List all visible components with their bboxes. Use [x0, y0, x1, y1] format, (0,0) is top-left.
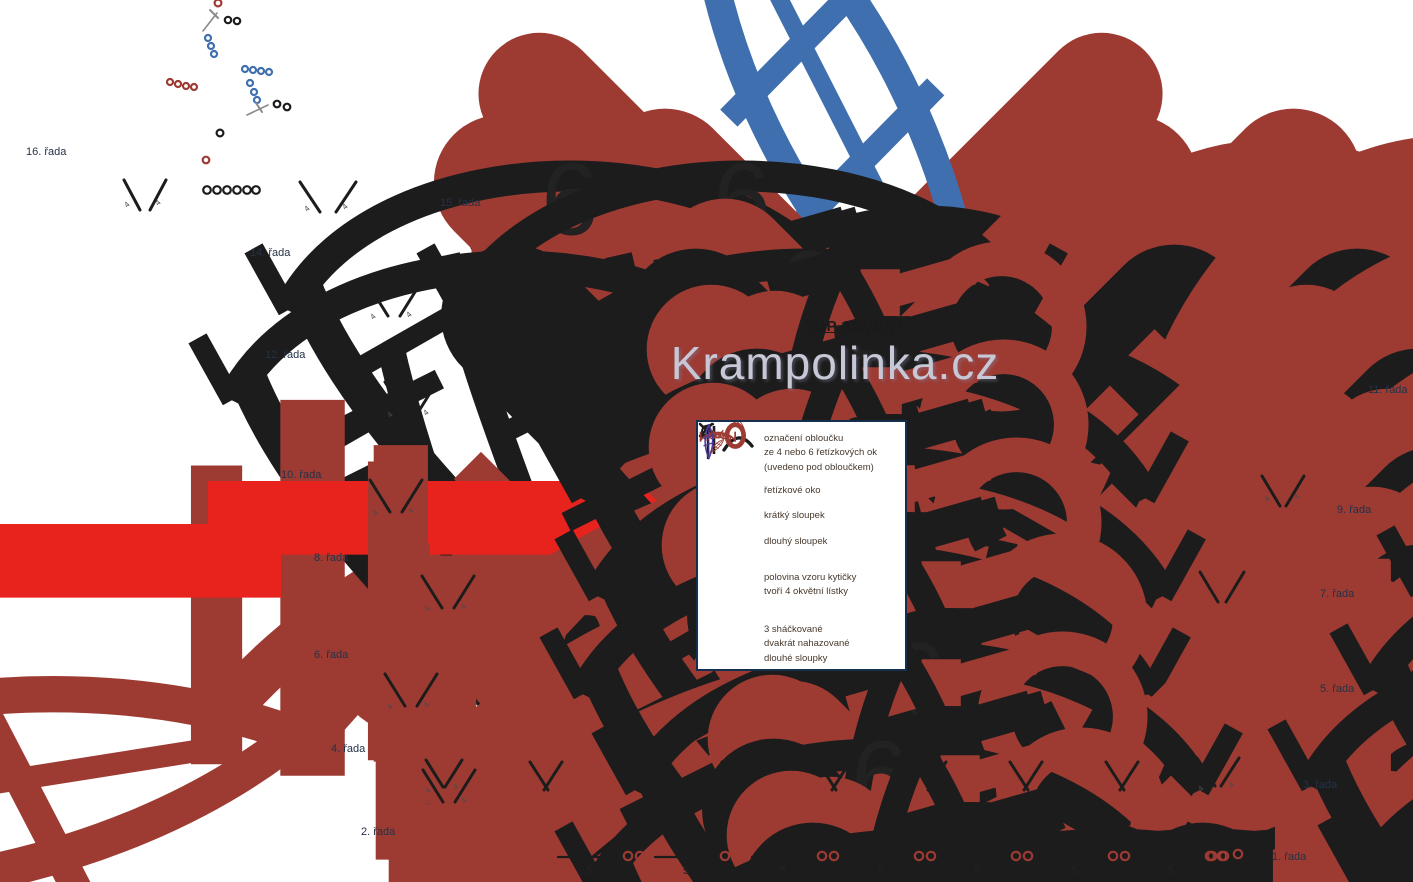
row-label-1: 1. řada	[1272, 851, 1306, 863]
chain-circle	[191, 84, 197, 90]
legend-row-short-post: krátký sloupek	[702, 507, 899, 533]
chain-circle	[217, 130, 224, 137]
legend-text: 3 sháčkované dvakrát nahazované dlouhé s…	[764, 621, 850, 666]
chain-circle	[223, 186, 231, 194]
count-label-5: 5	[1168, 865, 1174, 877]
chain-circle	[175, 81, 181, 87]
row-label-10: 10. řada	[281, 469, 321, 481]
row-label-14: 14. řada	[250, 247, 290, 259]
count-label-4: 4	[368, 311, 378, 321]
chain-circle	[167, 79, 173, 85]
row-label-3: 3. řada	[1303, 779, 1337, 791]
chain-circle	[213, 186, 221, 194]
count-label-5: 5	[780, 865, 786, 877]
count-label-5: 5	[683, 865, 689, 877]
chain-circle	[208, 43, 214, 49]
chain-circle	[233, 186, 241, 194]
count-label-4: 4	[153, 197, 163, 207]
chain-circle	[243, 186, 251, 194]
legend-row-half-flower: polovina vzoru kytičky tvoří 4 okvětní l…	[702, 569, 899, 621]
count-label-5: 5	[877, 865, 883, 877]
count-label-4: 4	[122, 199, 132, 209]
row-label-4: 4. řada	[331, 743, 365, 755]
count-label-5: 5	[1071, 865, 1077, 877]
legend-text: dlouhý sloupek	[764, 533, 827, 549]
row-label-11: 11. řada	[1368, 384, 1408, 396]
legend-box: označení obloučku ze 4 nebo 6 řetízkovýc…	[696, 420, 907, 671]
chain-circle	[254, 97, 260, 103]
row-label-15: 15. řada	[440, 197, 480, 209]
row-label-12: 12. řada	[265, 349, 305, 361]
diagram-title: TOP ADVENT	[740, 318, 970, 335]
chain-circle	[251, 89, 257, 95]
chain-circle	[284, 104, 291, 111]
legend-text: označení obloučku ze 4 nebo 6 řetízkovýc…	[764, 430, 877, 475]
row-label-9: 9. řada	[1337, 504, 1371, 516]
row-label-2: 2. řada	[361, 826, 395, 838]
legend-row-triple-treble: 3 sháčkované dvakrát nahazované dlouhé s…	[702, 621, 899, 671]
chain-circle	[247, 80, 253, 86]
count-label-5: 5	[586, 865, 592, 877]
legend-row-chain: řetízkové oko	[702, 482, 899, 507]
chain-circle	[242, 66, 248, 72]
row-label-6: 6. řada	[314, 649, 348, 661]
chain-circle	[203, 157, 210, 164]
chain-circle	[274, 101, 281, 108]
chain-circle	[203, 186, 211, 194]
chain-circle	[266, 69, 272, 75]
row-label-16: 16. řada	[26, 146, 66, 158]
legend-row-long-post: dlouhý sloupek	[702, 533, 899, 569]
count-label-4: 4	[340, 201, 350, 211]
chain-circle	[205, 35, 211, 41]
chain-circle	[258, 68, 264, 74]
chain-circle	[234, 18, 240, 24]
watermark-text: Krampolinka.cz	[595, 336, 1075, 390]
crochet-diagram: 6 44444444444444444455555554444 TOP ADVE…	[0, 0, 1413, 882]
chain-circle	[250, 67, 256, 73]
row-label-7: 7. řada	[1320, 588, 1354, 600]
row-label-5: 5. řada	[1320, 683, 1354, 695]
row-label-8: 8. řada	[314, 552, 348, 564]
count-label-5: 5	[974, 865, 980, 877]
legend-text: polovina vzoru kytičky tvoří 4 okvětní l…	[764, 569, 856, 600]
count-label-4: 4	[404, 309, 414, 319]
legend-text: řetízkové oko	[764, 482, 821, 498]
chain-circle	[225, 17, 231, 23]
chain-circle	[215, 0, 222, 6]
legend-text: krátký sloupek	[764, 507, 825, 523]
chain-circle	[211, 51, 217, 57]
count-label-4: 4	[302, 203, 312, 213]
chain-circle	[252, 186, 260, 194]
chain-circle	[183, 83, 189, 89]
